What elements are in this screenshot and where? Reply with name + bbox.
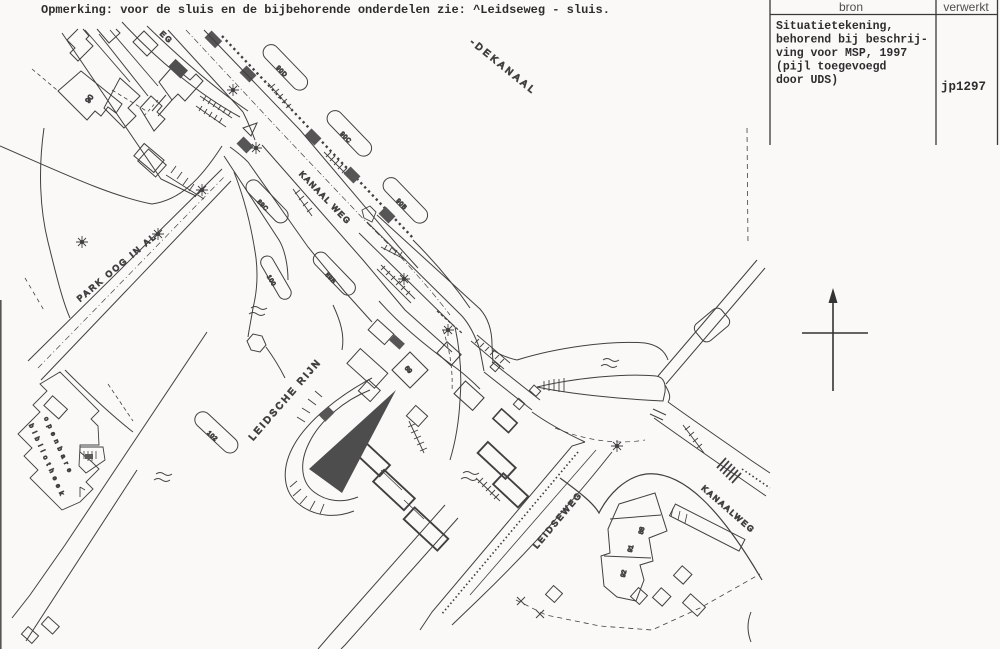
svg-text:verwerkt: verwerkt bbox=[943, 0, 989, 14]
svg-text:(pijl toegevoegd: (pijl toegevoegd bbox=[776, 61, 887, 74]
svg-text:Opmerking: voor de sluis en de: Opmerking: voor de sluis en de bijbehore… bbox=[41, 3, 610, 17]
svg-text:bron: bron bbox=[839, 0, 863, 14]
svg-text:ving voor MSP, 1997: ving voor MSP, 1997 bbox=[776, 47, 907, 60]
svg-text:Situatietekening,: Situatietekening, bbox=[776, 20, 893, 33]
svg-text:jp1297: jp1297 bbox=[941, 80, 986, 94]
svg-text:behorend bij beschrij-: behorend bij beschrij- bbox=[776, 34, 928, 47]
svg-text:door UDS): door UDS) bbox=[776, 74, 838, 87]
